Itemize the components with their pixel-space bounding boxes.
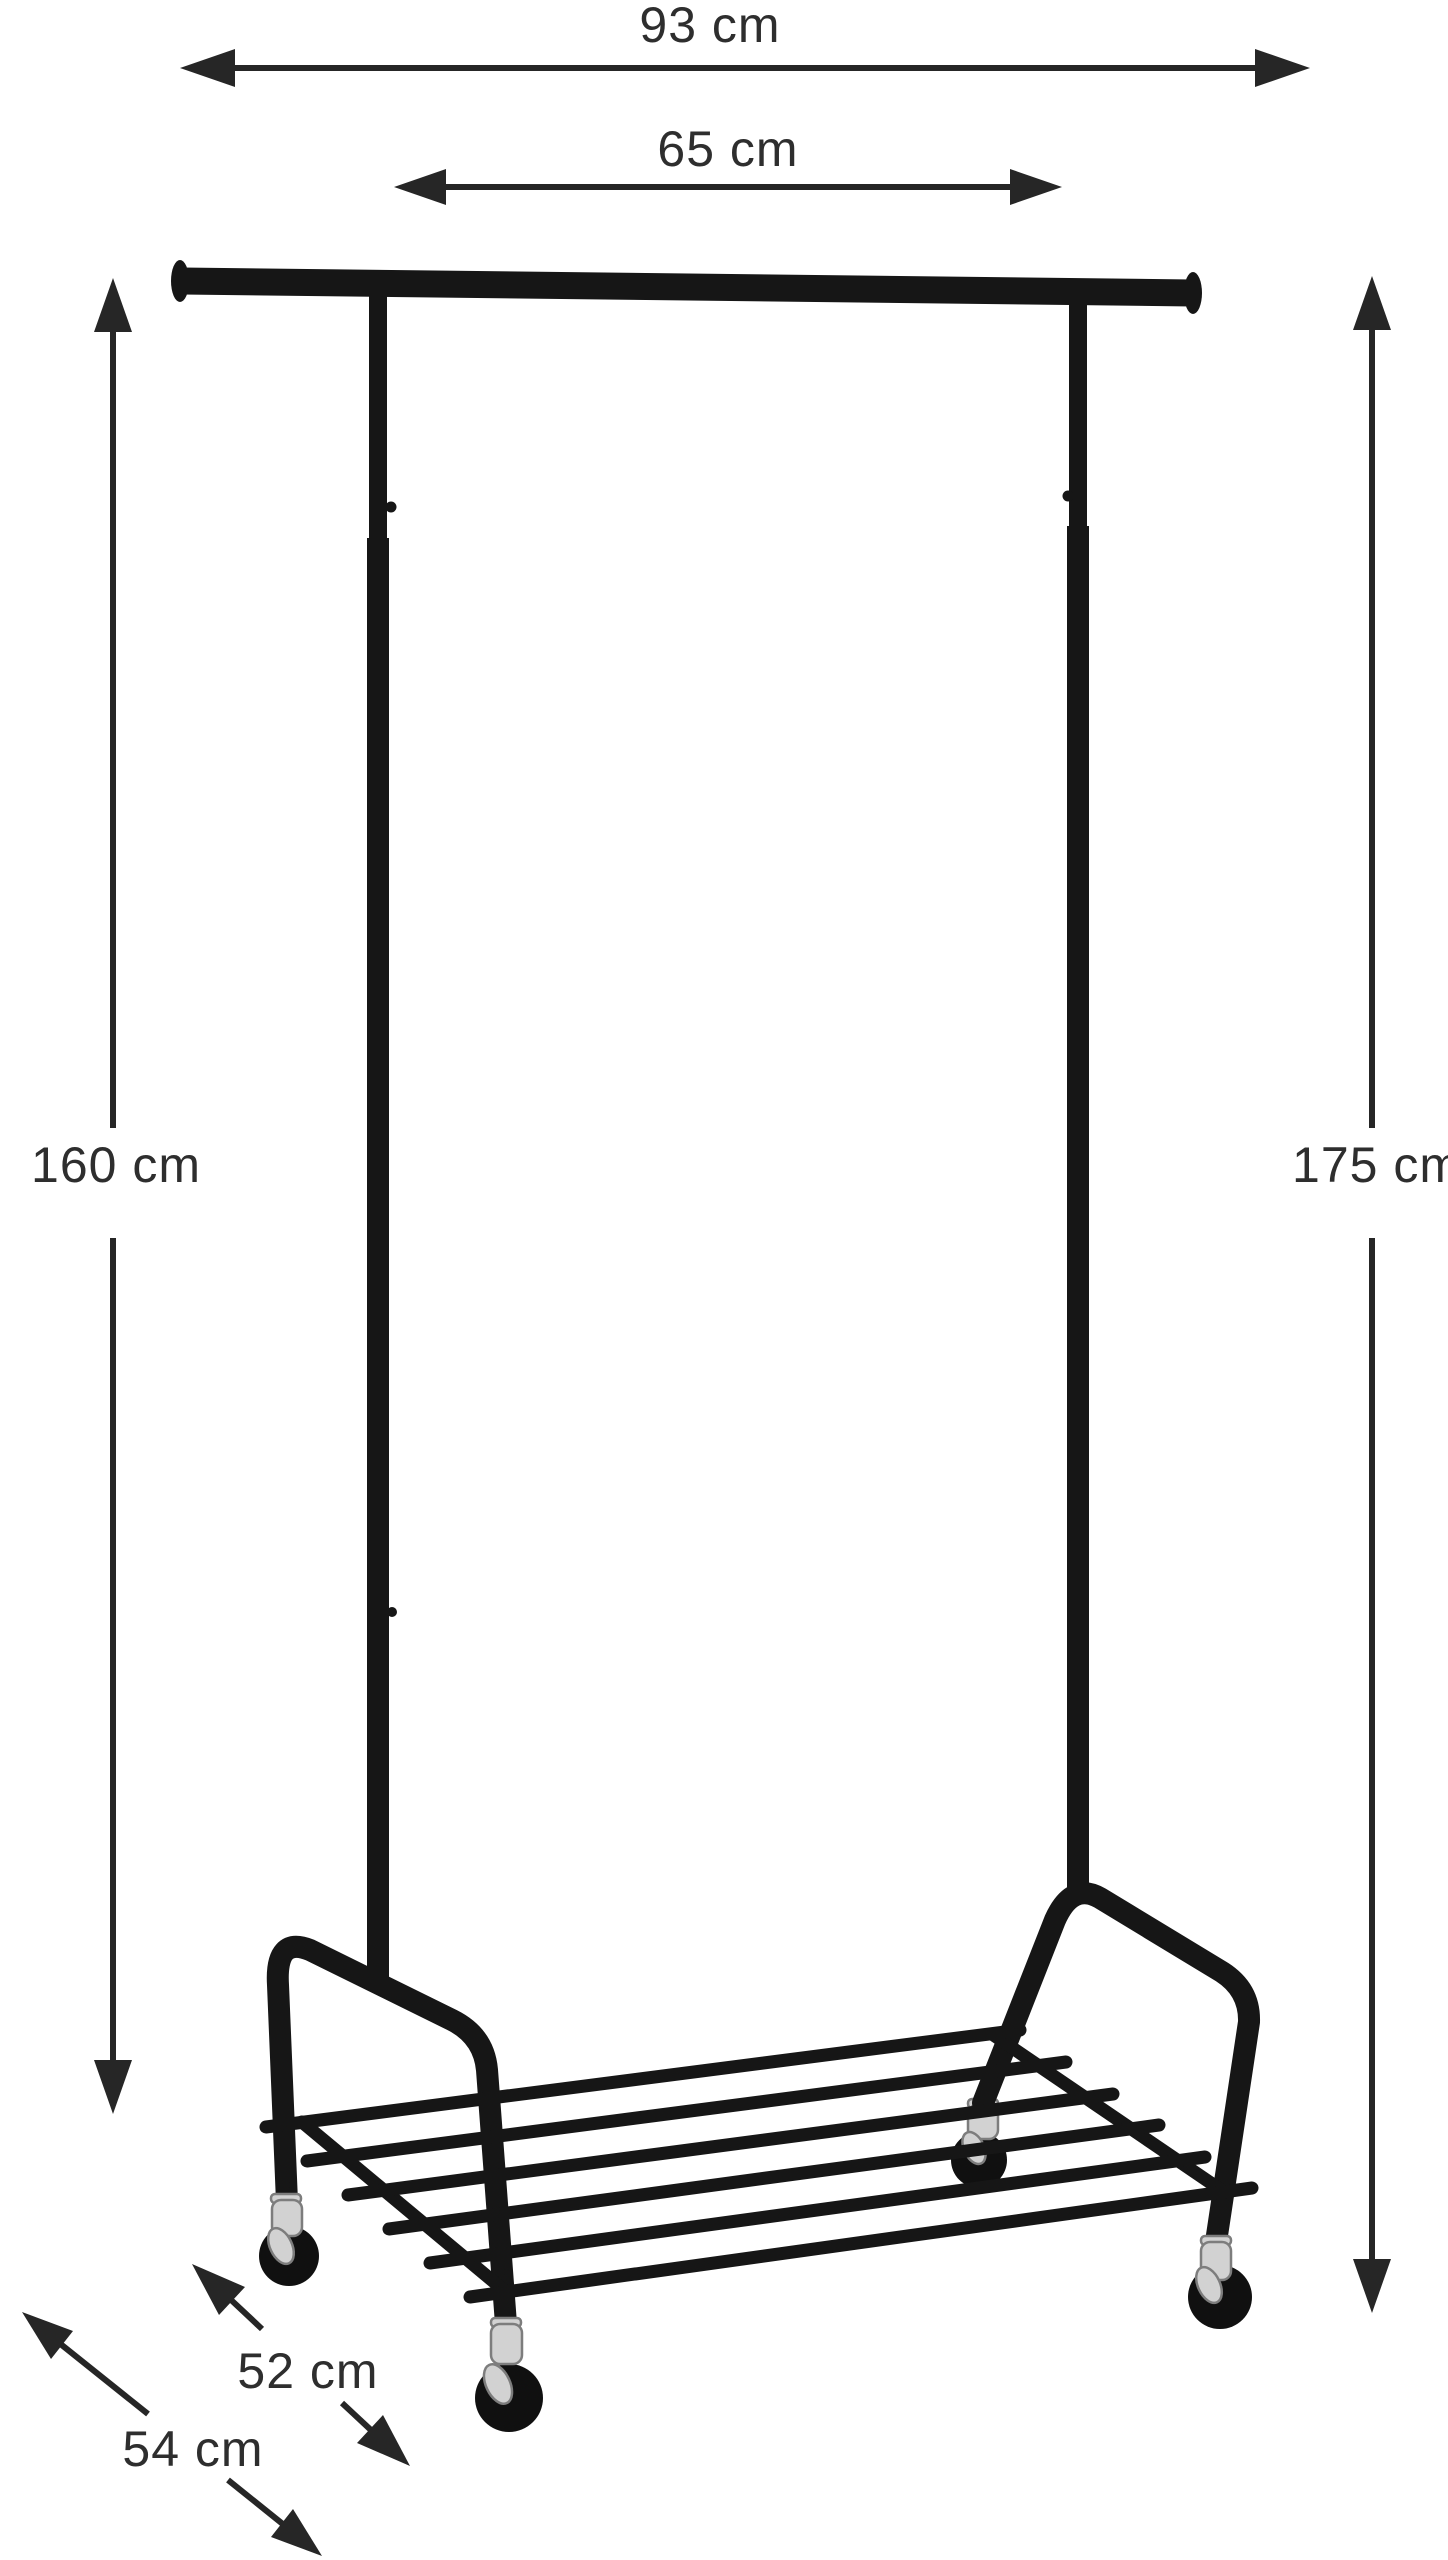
post-left bbox=[378, 288, 397, 1990]
arrowhead-up bbox=[94, 278, 132, 332]
dimension-label-depth-upper: 52 cm bbox=[237, 2343, 378, 2399]
dimension-line-lower bbox=[342, 2403, 372, 2431]
rail-end-cap-left bbox=[171, 260, 189, 302]
arrowhead-right bbox=[1255, 49, 1310, 87]
dimension-label-height-right: 175 cm bbox=[1292, 1137, 1448, 1193]
rail-end-cap-right bbox=[1184, 272, 1202, 314]
arrowhead-se bbox=[271, 2509, 322, 2556]
arrowhead-nw bbox=[22, 2312, 73, 2359]
dimension-line-upper bbox=[229, 2298, 262, 2329]
dimension-line-lower bbox=[228, 2480, 284, 2525]
dimension-height-left: 160 cm bbox=[31, 278, 201, 2114]
dimension-height-right: 175 cm bbox=[1292, 276, 1448, 2313]
post-right bbox=[1063, 292, 1079, 1892]
rail-tube bbox=[182, 281, 1192, 293]
arrowhead-left bbox=[180, 49, 235, 87]
dimension-line-upper bbox=[58, 2342, 148, 2414]
garment-rack bbox=[171, 260, 1252, 2432]
arrowhead-up bbox=[1353, 276, 1391, 330]
shelf-bolt bbox=[495, 2267, 505, 2277]
post-bolt bbox=[387, 1607, 397, 1617]
caster-front-right bbox=[1188, 2236, 1252, 2329]
arrowhead-right bbox=[1010, 169, 1062, 205]
dimension-label-depth-lower: 54 cm bbox=[122, 2421, 263, 2477]
dimension-label-hanger-width: 65 cm bbox=[657, 121, 798, 177]
dimension-label-top-width: 93 cm bbox=[639, 0, 780, 53]
garment-rack-dimension-diagram: 93 cm 65 cm 160 cm 175 cm bbox=[0, 0, 1448, 2560]
hanging-rail bbox=[171, 260, 1202, 314]
shelf-bolt bbox=[280, 2180, 290, 2190]
arrowhead-down bbox=[94, 2060, 132, 2114]
arrowhead-left bbox=[394, 169, 446, 205]
caster-back-left bbox=[259, 2194, 319, 2286]
dimension-label-height-left: 160 cm bbox=[31, 1137, 201, 1193]
arrowhead-down bbox=[1353, 2259, 1391, 2313]
dimension-top-width: 93 cm bbox=[180, 0, 1310, 87]
caster-front-left bbox=[475, 2318, 543, 2432]
caster-fork bbox=[491, 2324, 522, 2364]
dimension-hanger-width: 65 cm bbox=[394, 121, 1062, 205]
bottom-shelf bbox=[266, 2030, 1252, 2297]
height-adjuster-knob bbox=[386, 502, 397, 513]
height-adjuster-knob bbox=[1063, 491, 1074, 502]
diagram-canvas: 93 cm 65 cm 160 cm 175 cm bbox=[0, 0, 1448, 2560]
